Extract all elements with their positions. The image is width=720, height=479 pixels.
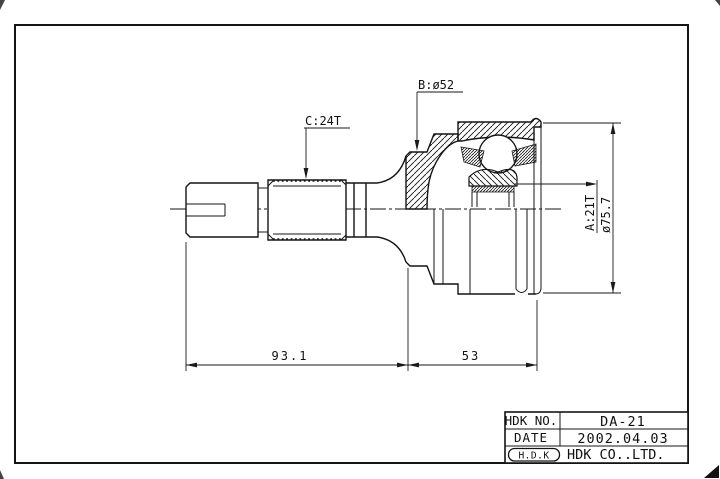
arrowhead bbox=[186, 363, 197, 368]
date-value: 2002.04.03 bbox=[577, 431, 668, 447]
engineering-drawing: 93.1 53 B:ø52 C:24T A:21T ø75.7 HDK NO. … bbox=[0, 0, 720, 479]
housing-left-wall bbox=[406, 134, 458, 209]
shaft-stub bbox=[186, 183, 258, 237]
boot-seat bbox=[346, 183, 377, 237]
arrowhead bbox=[611, 282, 616, 293]
dim-shaft-length: 93.1 bbox=[272, 349, 309, 363]
arrowhead bbox=[304, 168, 309, 179]
label-c-leader bbox=[304, 128, 350, 170]
label-a-diameter: ø75.7 bbox=[599, 197, 613, 233]
label-c: C:24T bbox=[305, 114, 341, 128]
label-b: B:ø52 bbox=[418, 78, 454, 92]
inner-race-bore-lines bbox=[472, 192, 514, 207]
title-block: HDK NO. DA-21 DATE 2002.04.03 H.D.K HDK … bbox=[505, 412, 688, 463]
snap-ring-groove bbox=[516, 209, 527, 293]
hdk-logo-text: H.D.K bbox=[518, 451, 549, 462]
corner-marks bbox=[0, 0, 720, 479]
bearing-ball bbox=[479, 135, 517, 173]
hdk-no-label: HDK NO. bbox=[505, 413, 558, 428]
dim-joint-length: 53 bbox=[462, 349, 480, 363]
housing-bottom-edges bbox=[434, 209, 534, 294]
label-a: A:21T bbox=[583, 195, 597, 231]
cv-joint-housing bbox=[406, 119, 541, 295]
cage-left bbox=[461, 147, 484, 167]
shaft-neck bbox=[258, 188, 268, 232]
extension-lines bbox=[186, 123, 621, 371]
inner-race-spline bbox=[472, 186, 514, 192]
arrowhead bbox=[611, 123, 616, 134]
inner-race bbox=[469, 169, 517, 186]
arrowhead bbox=[415, 140, 420, 151]
arrowhead bbox=[408, 363, 419, 368]
corner-mark-top-left bbox=[0, 0, 5, 10]
date-label: DATE bbox=[514, 430, 548, 445]
corner-mark-top-right bbox=[715, 0, 720, 6]
arrowhead bbox=[586, 182, 597, 187]
hdk-no-value: DA-21 bbox=[600, 414, 646, 430]
corner-mark-bottom-right bbox=[704, 465, 719, 478]
drawing-sheet: 93.1 53 B:ø52 C:24T A:21T ø75.7 HDK NO. … bbox=[0, 0, 720, 479]
dimension-lines bbox=[186, 123, 613, 365]
arrowhead bbox=[526, 363, 537, 368]
company-name: HDK CO..LTD. bbox=[567, 447, 665, 463]
corner-mark-bottom-left bbox=[0, 470, 4, 479]
drawing-frame bbox=[15, 25, 688, 463]
spline-section bbox=[268, 180, 346, 240]
arrowhead bbox=[397, 363, 408, 368]
